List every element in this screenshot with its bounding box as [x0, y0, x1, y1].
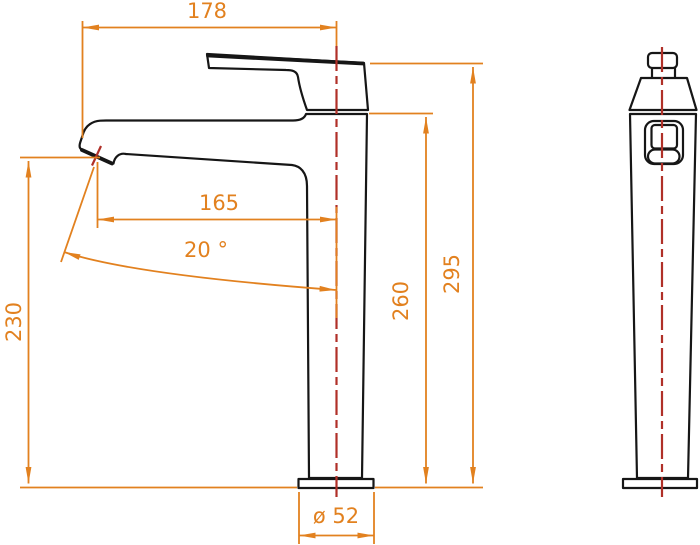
angle-20-reference-line [61, 167, 94, 262]
side-view [623, 53, 697, 488]
dim-label-20deg: 20 ° [176, 239, 236, 261]
dim-label-260: 260 [390, 271, 412, 331]
front-view [80, 54, 374, 488]
dim-label-178: 178 [177, 0, 237, 22]
dim-label-165: 165 [189, 192, 249, 214]
front-body-and-spout [80, 114, 367, 478]
drawing-canvas [0, 0, 700, 545]
dim-label-295: 295 [441, 244, 463, 304]
side-base-plate [623, 479, 697, 488]
dim-label-diameter-52: ø 52 [306, 505, 366, 527]
dimension-lines [20, 21, 483, 544]
technical-drawing: 178 165 20 ° 230 260 295 ø 52 [0, 0, 700, 545]
dim-label-230: 230 [3, 292, 25, 352]
